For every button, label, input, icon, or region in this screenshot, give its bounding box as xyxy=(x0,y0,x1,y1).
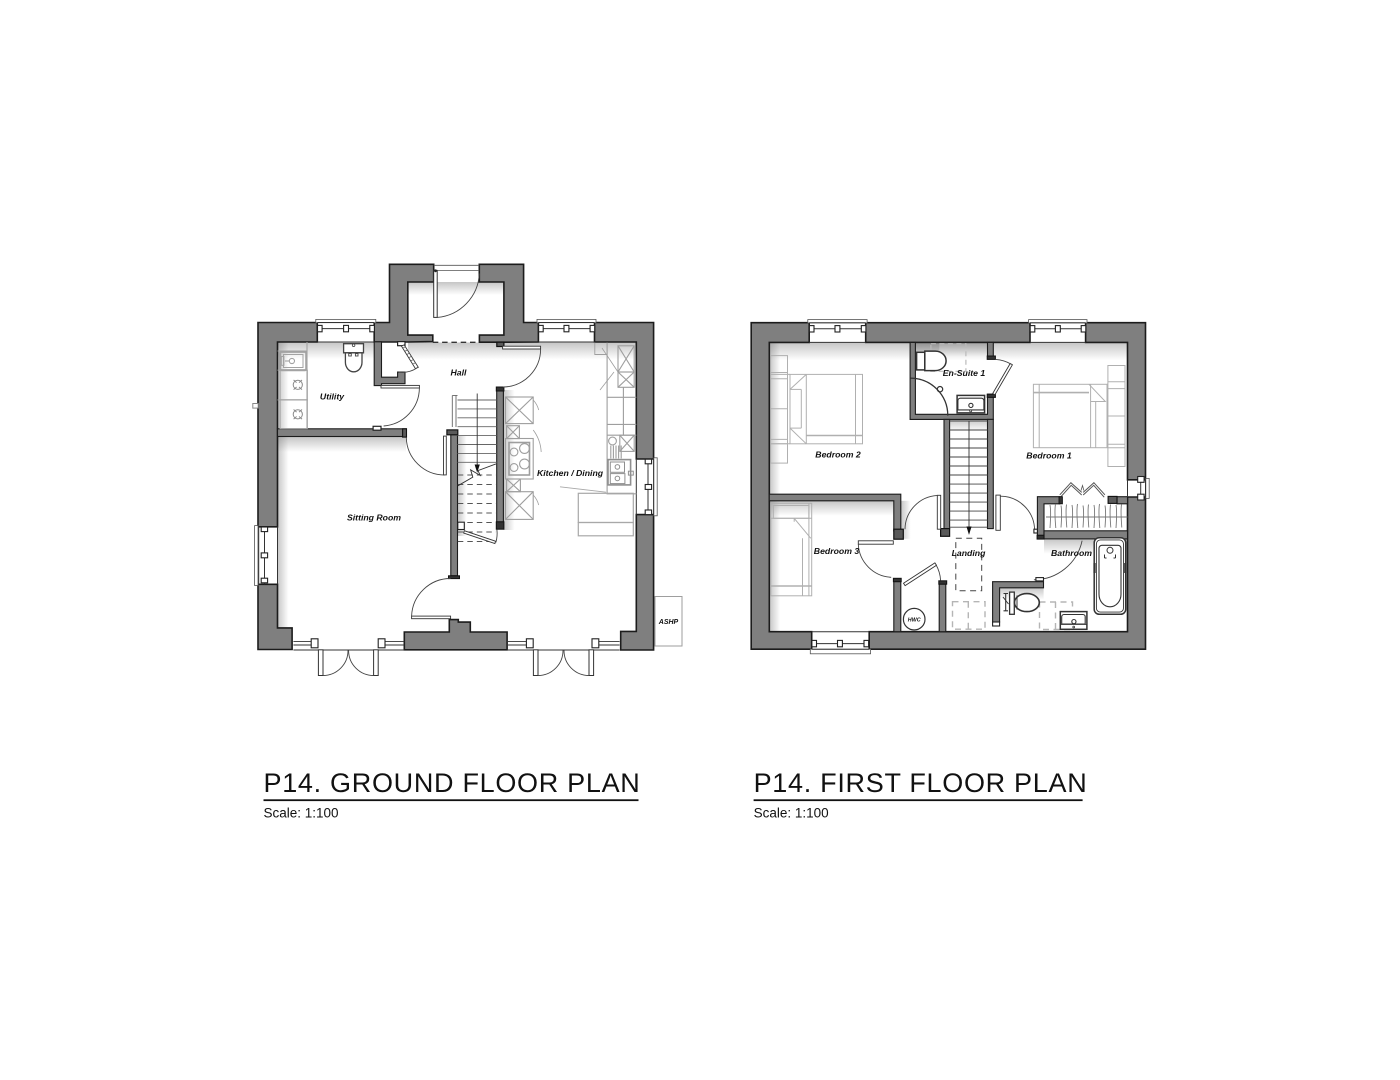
svg-text:Bedroom 3: Bedroom 3 xyxy=(814,546,860,556)
svg-text:ASHP: ASHP xyxy=(658,619,679,626)
svg-text:Utility: Utility xyxy=(320,392,345,402)
svg-text:Kitchen / Dining: Kitchen / Dining xyxy=(537,468,604,478)
svg-text:P14. GROUND FLOOR PLAN: P14. GROUND FLOOR PLAN xyxy=(264,768,641,798)
svg-text:Scale: 1:100: Scale: 1:100 xyxy=(264,806,339,821)
svg-text:Scale: 1:100: Scale: 1:100 xyxy=(754,806,829,821)
svg-text:Sitting Room: Sitting Room xyxy=(347,513,401,523)
svg-text:Landing: Landing xyxy=(952,548,986,558)
svg-text:Bedroom 2: Bedroom 2 xyxy=(815,450,861,460)
svg-text:P14. FIRST FLOOR PLAN: P14. FIRST FLOOR PLAN xyxy=(754,768,1088,798)
svg-text:Bedroom 1: Bedroom 1 xyxy=(1026,451,1072,461)
svg-text:HWC: HWC xyxy=(908,617,921,623)
svg-text:Hall: Hall xyxy=(451,368,468,378)
svg-text:Bathroom: Bathroom xyxy=(1051,548,1092,558)
svg-text:En-Suite 1: En-Suite 1 xyxy=(943,368,986,378)
